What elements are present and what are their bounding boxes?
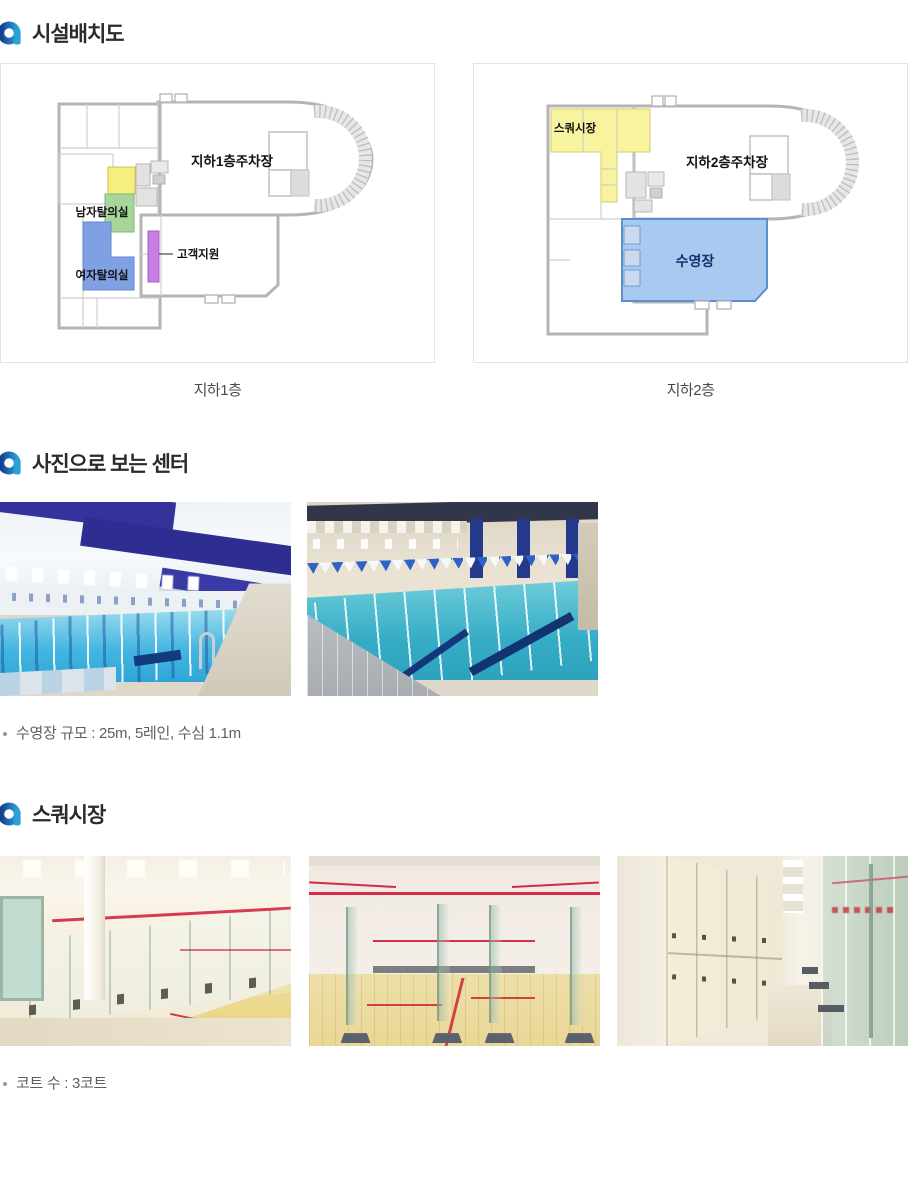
court-count-text: 코트 수 : 3코트: [16, 1072, 107, 1093]
squash1-pillar: [84, 856, 104, 1000]
squash3-glass-post: [869, 864, 873, 1039]
section-title-squash: 스쿼시장: [32, 799, 105, 829]
b1-customer-support-area: [148, 231, 159, 282]
floor-plan-captions: 지하1층 지하2층: [0, 379, 908, 400]
pool2-right-wall: [578, 523, 598, 630]
bullet-dot-icon: [3, 732, 7, 736]
squash3-glass-seams: [821, 856, 908, 1046]
squash2-pane-base: [485, 1033, 515, 1043]
pool2-pillar: [470, 519, 483, 577]
squash1-lights: [23, 860, 285, 877]
pool2-pillar: [517, 519, 530, 577]
squash3-ceiling-lights: [783, 860, 803, 913]
squash3-pane-base: [802, 967, 818, 974]
squash3-pane-base: [818, 1005, 844, 1012]
pool-photo-lane-view: [307, 502, 598, 696]
squash-photos-row: [0, 856, 908, 1046]
squash2-glass-pane: [346, 907, 359, 1025]
facility-info-page: 시설배치도: [0, 18, 908, 1093]
squash2-glass-pane: [489, 905, 502, 1023]
b1-customer-support-label: 고객지원: [177, 247, 219, 261]
pool1-ladder: [199, 632, 215, 669]
a-ring-icon: [0, 20, 23, 46]
pool-spec-note: 수영장 규모 : 25m, 5레인, 수심 1.1m: [0, 722, 908, 743]
squash3-red-signage: [832, 907, 896, 913]
section-title-center-photos: 사진으로 보는 센터: [32, 448, 188, 478]
b1-womens-locker-label: 여자탈의실: [76, 268, 129, 282]
b1-parking-label: 지하1층주차장: [191, 153, 274, 169]
squash2-out-line: [309, 892, 600, 895]
squash2-glass-pane: [437, 904, 450, 1022]
squash3-pane-base: [809, 982, 829, 989]
b2-pool-utilities: [624, 226, 640, 286]
pool2-lights: [313, 539, 459, 549]
b2-pool-vents: [695, 301, 731, 309]
b1-highlight-area: [108, 167, 135, 194]
b1-mens-locker-label: 남자탈의실: [76, 205, 129, 219]
squash2-tin-board: [373, 966, 536, 973]
floor-plans-row: 지하1층주차장 남자탈의실 여자탈의실 고객지원: [0, 63, 908, 363]
squash1-door: [0, 896, 44, 1001]
squash2-floor-line: [367, 1004, 443, 1006]
court-count-note: 코트 수 : 3코트: [0, 1072, 908, 1093]
a-ring-icon: [0, 801, 23, 827]
squash2-floor-line: [471, 997, 535, 999]
b2-pool-label: 수영장: [676, 253, 715, 269]
a-ring-icon: [0, 450, 23, 476]
floor-plan-b2-panel: 스쿼시장 지하2층주차장 수영장: [473, 63, 908, 363]
section-header-squash: 스쿼시장: [0, 799, 908, 829]
floor-plan-b2: 스쿼시장 지하2층주차장 수영장: [474, 64, 907, 362]
squash3-end-panel: [617, 856, 668, 1046]
floor-plan-b1: 지하1층주차장 남자탈의실 여자탈의실 고객지원: [1, 64, 434, 362]
squash2-ceiling: [309, 856, 600, 866]
bullet-dot-icon: [3, 1082, 7, 1086]
squash-photo-court-view: [309, 856, 600, 1046]
b2-parking-label: 지하2층주차장: [686, 154, 769, 170]
section-header-facility-layout: 시설배치도: [0, 18, 908, 48]
squash-photo-corridor-view: [0, 856, 291, 1046]
squash2-glass-pane: [570, 907, 583, 1025]
section-title-facility-layout: 시설배치도: [32, 18, 124, 48]
section-header-center-photos: 사진으로 보는 센터: [0, 448, 908, 478]
squash2-pane-base: [432, 1033, 462, 1043]
b2-squash-label: 스쿼시장: [554, 121, 597, 135]
floor-plan-b2-caption: 지하2층: [473, 379, 908, 400]
squash-photo-lockers-view: [617, 856, 908, 1046]
pool-photo-angled-view: [0, 502, 291, 696]
pool2-ceiling-slats: [307, 521, 467, 533]
squash2-service-line: [373, 940, 536, 943]
squash2-pane-base: [341, 1033, 371, 1043]
floor-plan-b1-panel: 지하1층주차장 남자탈의실 여자탈의실 고객지원: [0, 63, 435, 363]
pool-spec-text: 수영장 규모 : 25m, 5레인, 수심 1.1m: [16, 722, 241, 743]
squash1-corridor-floor: [0, 1018, 291, 1047]
squash2-pane-base: [565, 1033, 595, 1043]
pool-photos-row: [0, 502, 908, 696]
floor-plan-b1-caption: 지하1층: [0, 379, 435, 400]
